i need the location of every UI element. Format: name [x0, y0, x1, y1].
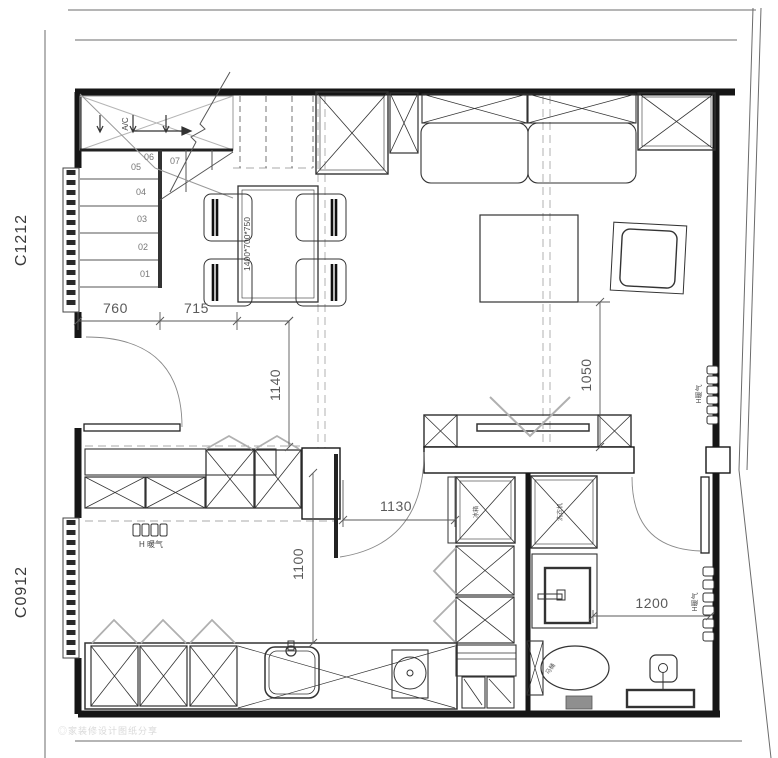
- tv-swing-mark: [490, 397, 570, 436]
- shoe-cabinet: [85, 436, 301, 508]
- toilet: [527, 641, 609, 695]
- bathroom-door-swing: [632, 477, 701, 551]
- bathroom: 洗衣机 马桶 H暖气: [527, 476, 714, 709]
- coffee-table: [480, 215, 578, 302]
- dim-1100: 1100: [290, 548, 306, 580]
- dim-760: 760: [103, 300, 128, 316]
- entry-door-leaf: [84, 424, 180, 431]
- washer-label: 洗衣机: [556, 503, 564, 521]
- armchair: [610, 222, 686, 294]
- fridge-label: 冰箱: [472, 506, 480, 518]
- step-07: 07: [170, 156, 180, 166]
- step-04: 04: [136, 187, 146, 197]
- stair-risers: [80, 150, 233, 287]
- dining-chair: [296, 259, 346, 306]
- step-03: 03: [137, 214, 147, 224]
- dim-1140: 1140: [267, 369, 283, 401]
- floor-plan-drawing: C1212 C0912 A/C 01 02 03 04 05 06: [0, 0, 778, 758]
- floor-plan: C1212 C0912 A/C 01 02 03 04 05 06: [0, 0, 778, 758]
- step-02: 02: [138, 242, 148, 252]
- dim-1050: 1050: [578, 358, 594, 391]
- step-06: 06: [144, 152, 154, 162]
- shower: [627, 655, 694, 707]
- step-01: 01: [140, 269, 150, 279]
- dim-715: 715: [184, 300, 209, 316]
- dining-chair: [296, 194, 346, 241]
- washing-machine: [531, 476, 597, 548]
- dim-1200: 1200: [635, 595, 668, 611]
- step-05: 05: [131, 162, 141, 172]
- window-label-c0912: C0912: [13, 566, 30, 618]
- bathroom-door-leaf: [701, 477, 709, 553]
- radiator-bath: [703, 567, 714, 641]
- radiator-living-label: H暖气: [694, 384, 703, 403]
- living-room: [316, 92, 715, 447]
- door-swing-marks: [434, 548, 456, 643]
- stove: [392, 650, 428, 698]
- ac-label: A/C: [121, 117, 130, 131]
- cabinet-xbox: [638, 93, 715, 150]
- dining-table-spec: 1400*700*750: [242, 217, 252, 271]
- basin: [545, 568, 590, 623]
- cabinet-xbox: [316, 92, 388, 174]
- door-swing-marks: [92, 620, 235, 643]
- watermark: ◎家装修设计图纸分享: [58, 725, 158, 736]
- radiator-kitchen-label: H 暖气: [139, 539, 163, 549]
- radiator-bath-label: H暖气: [690, 592, 699, 611]
- entry-door-swing: [86, 337, 182, 427]
- ac-closet: [80, 96, 233, 150]
- radiator-kitchen: [133, 524, 167, 536]
- kitchen-counter: [85, 620, 457, 709]
- floor-drain-step: [566, 696, 592, 709]
- door-swing-marks: [206, 436, 299, 449]
- cabinet-xbox: [390, 93, 418, 153]
- window-label-c1212: C1212: [13, 214, 30, 266]
- fridge: [448, 477, 515, 543]
- vanity: [532, 554, 597, 628]
- tall-cabinet-column: [434, 546, 516, 708]
- toilet-label: 马桶: [544, 662, 557, 676]
- window-c0912: [63, 518, 79, 658]
- dim-1130: 1130: [380, 498, 412, 514]
- entry-area: [84, 337, 301, 508]
- tv: [477, 424, 589, 431]
- kitchen-sink: [265, 641, 319, 698]
- stair-diagonals: [80, 94, 233, 198]
- stair-upper-flight-dashed: [240, 96, 313, 168]
- window-c1212: [63, 168, 79, 312]
- staircase: A/C 01 02 03 04 05 06 07: [80, 72, 313, 288]
- sofa: [421, 94, 636, 183]
